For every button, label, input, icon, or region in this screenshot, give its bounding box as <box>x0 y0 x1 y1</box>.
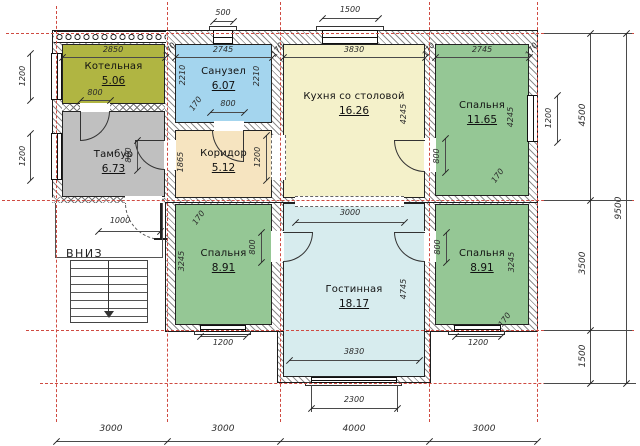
dim-tick <box>27 177 34 184</box>
grid-axis-line <box>537 2 538 422</box>
grid-axis-line <box>429 2 430 422</box>
room-tambur-area: 6.73 <box>102 163 125 175</box>
room-kotelnaya-area: 5.06 <box>102 75 125 87</box>
door-opening-tambur <box>164 140 176 170</box>
dim-tick <box>554 139 561 146</box>
dim-bedroom-left-depth: 3245 <box>177 241 187 281</box>
dim-line <box>289 360 419 361</box>
dim-line <box>213 21 233 22</box>
dim-living-depth: 4745 <box>399 269 409 309</box>
dim-entry-door: 1000 <box>100 216 140 226</box>
dim-door-bedroom-top-right: 800 <box>432 136 442 176</box>
dim-window-kotelnaya: 1200 <box>18 56 28 96</box>
dim-col-1: 3000 <box>91 424 131 434</box>
dim-bedroom-right-depth: 3245 <box>507 242 517 282</box>
dim-total-height: 9500 <box>614 188 624 228</box>
dim-koridor-opening: 1200 <box>253 137 263 177</box>
dim-line <box>435 57 529 58</box>
room-koridor-area: 5.12 <box>212 162 235 174</box>
dim-line <box>30 53 31 100</box>
dim-kotelnaya-width: 2850 <box>93 45 133 55</box>
dim-line <box>445 138 446 172</box>
room-bedroom-bottom-right-area: 8.91 <box>470 262 493 274</box>
dim-line <box>175 57 272 58</box>
room-living-name: Гостинная <box>325 284 382 295</box>
dim-col-3: 4000 <box>334 424 374 434</box>
dim-col-4: 3000 <box>464 424 504 434</box>
room-kotelnaya-name: Котельная <box>85 61 143 72</box>
dim-line <box>137 140 138 170</box>
dim-line <box>200 336 246 337</box>
dim-tick <box>534 438 541 445</box>
stairs-direction-line <box>108 261 109 312</box>
dim-line <box>98 231 160 232</box>
dim-line <box>322 18 378 19</box>
dim-window-tambur: 1200 <box>18 136 28 176</box>
dim-window-bedroom-bottom-left: 1200 <box>203 338 243 348</box>
room-bedroom-bottom-right-name: Спальня <box>459 248 505 259</box>
stairs-down-arrow-icon <box>104 311 114 318</box>
room-bedroom-top-right-area: 11.65 <box>467 114 497 126</box>
dim-sanuzel-depth-right: 2210 <box>252 56 262 96</box>
grid-axis-line <box>56 6 57 422</box>
room-kitchen-area: 16.26 <box>339 105 369 117</box>
dim-living-opening: 3000 <box>330 208 370 218</box>
dim-bedroom-top-right-depth: 4245 <box>506 97 516 137</box>
dim-line <box>56 441 537 442</box>
room-sanuzel-area: 6.07 <box>212 80 235 92</box>
dim-line <box>283 57 425 58</box>
passage-koridor-kitchen <box>271 135 286 180</box>
dim-kitchen-depth: 4245 <box>399 94 409 134</box>
grid-axis-line <box>167 2 168 422</box>
passage-kitchen-living <box>295 196 404 207</box>
dim-bedroom-top-right-width: 2745 <box>462 45 502 55</box>
dim-row-2: 3500 <box>578 243 588 283</box>
room-living-area: 18.17 <box>339 298 369 310</box>
dim-window-kitchen: 1500 <box>330 5 370 15</box>
room-sanuzel-name: Санузел <box>201 66 246 77</box>
dim-tick <box>27 97 34 104</box>
dim-tick <box>375 15 382 22</box>
dim-line <box>455 336 501 337</box>
dim-row-1: 4500 <box>578 95 588 135</box>
dim-line <box>311 408 397 409</box>
dim-koridor-depth: 1865 <box>176 142 186 182</box>
dim-line <box>295 222 404 223</box>
dim-line <box>261 232 262 262</box>
partition-kotelnaya <box>62 104 165 111</box>
dim-door-bedroom-bottom-left: 800 <box>248 227 258 267</box>
dim-sanuzel-depth-left: 2210 <box>178 55 188 95</box>
dim-door-bedroom-bottom-right: 800 <box>433 227 443 267</box>
grid-axis-line <box>2 200 634 201</box>
dim-door-tambur: 800 <box>124 135 134 175</box>
dim-kitchen-width: 3830 <box>334 45 374 55</box>
floor-plan-drawing: Котельная 5.06 Санузел 6.07 Кухня со сто… <box>0 0 640 446</box>
dim-window-living: 2300 <box>334 395 374 405</box>
dim-sanuzel-width: 2745 <box>203 45 243 55</box>
dim-window-sanuzel: 500 <box>203 8 243 18</box>
dim-door-kotelnaya: 800 <box>75 88 115 98</box>
grid-axis-line <box>6 33 634 34</box>
dim-living-width: 3830 <box>334 347 374 357</box>
dim-line <box>266 135 267 180</box>
room-bedroom-bottom-left-name: Спальня <box>201 248 247 259</box>
dim-col-2: 3000 <box>203 424 243 434</box>
stairs-down-label: ВНИЗ <box>66 247 103 260</box>
dim-window-bedroom-top-right: 1200 <box>544 98 554 138</box>
room-bedroom-bottom-left-area: 8.91 <box>212 262 235 274</box>
dim-window-bedroom-bottom-right: 1200 <box>458 338 498 348</box>
dim-line <box>210 112 244 113</box>
room-bedroom-top-right-name: Спальня <box>459 100 505 111</box>
room-kitchen-name: Кухня со столовой <box>303 91 404 102</box>
grid-axis-line <box>26 330 634 331</box>
dim-tick <box>230 18 237 25</box>
dim-line <box>62 57 165 58</box>
dim-door-sanuzel: 800 <box>208 99 248 109</box>
dim-line <box>446 232 447 262</box>
dim-line <box>30 133 31 180</box>
grid-axis-line <box>280 2 281 422</box>
dim-line <box>557 95 558 142</box>
dim-line <box>80 100 110 101</box>
dim-row-3: 1500 <box>578 336 588 376</box>
